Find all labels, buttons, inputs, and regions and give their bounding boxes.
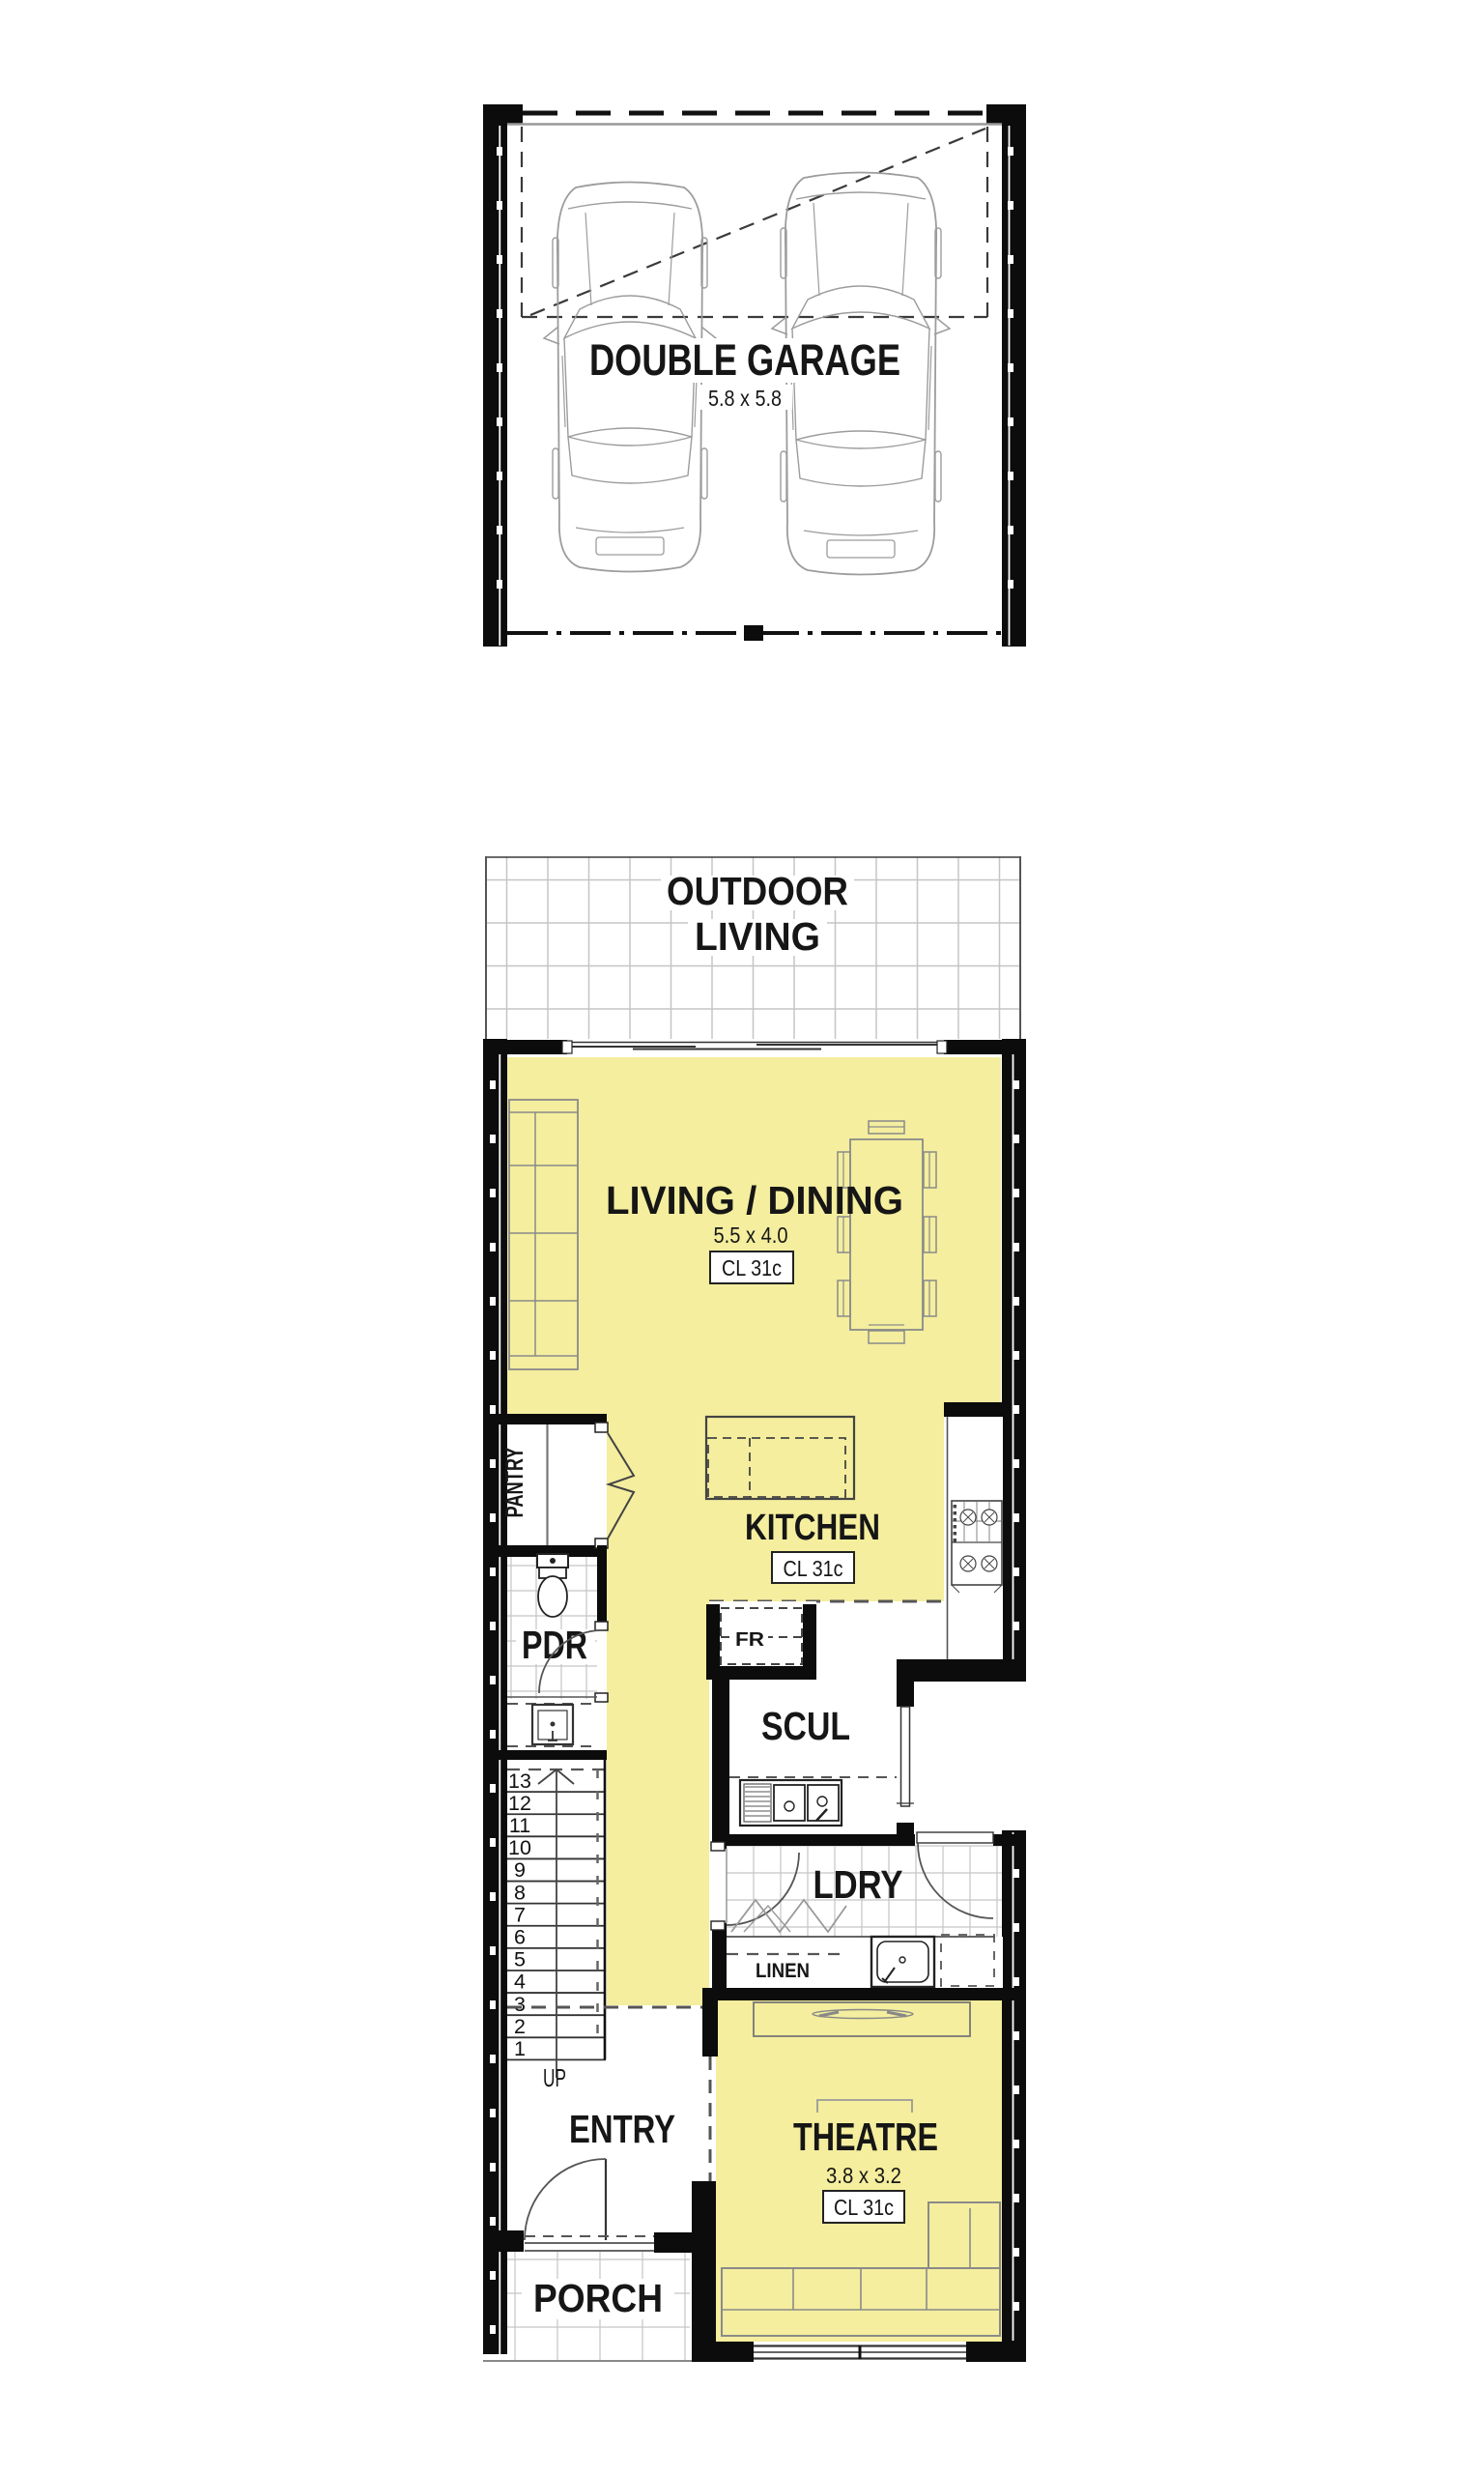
svg-text:5.8 x 5.8: 5.8 x 5.8 bbox=[708, 386, 782, 411]
svg-text:13: 13 bbox=[508, 1769, 531, 1793]
svg-text:FR: FR bbox=[735, 1629, 765, 1651]
svg-text:THEATRE: THEATRE bbox=[793, 2114, 938, 2159]
svg-text:LINEN: LINEN bbox=[756, 1960, 810, 1982]
svg-text:3: 3 bbox=[514, 1993, 526, 2016]
svg-text:LDRY: LDRY bbox=[813, 1862, 903, 1907]
svg-text:1: 1 bbox=[514, 2037, 526, 2060]
svg-text:4: 4 bbox=[514, 1971, 526, 1994]
svg-text:10: 10 bbox=[508, 1836, 531, 1859]
svg-text:5: 5 bbox=[514, 1948, 526, 1971]
svg-text:CL 31c: CL 31c bbox=[784, 1556, 843, 1581]
svg-text:8: 8 bbox=[514, 1881, 526, 1904]
svg-text:LIVING: LIVING bbox=[695, 914, 820, 959]
svg-text:SCUL: SCUL bbox=[761, 1704, 850, 1748]
svg-text:PORCH: PORCH bbox=[533, 2276, 663, 2320]
svg-text:KITCHEN: KITCHEN bbox=[745, 1508, 880, 1548]
svg-text:11: 11 bbox=[509, 1814, 530, 1837]
svg-text:CL 31c: CL 31c bbox=[834, 2195, 894, 2220]
svg-text:CL 31c: CL 31c bbox=[722, 1255, 782, 1280]
svg-text:PANTRY: PANTRY bbox=[499, 1448, 528, 1518]
svg-text:5.5 x 4.0: 5.5 x 4.0 bbox=[714, 1223, 788, 1248]
svg-text:12: 12 bbox=[508, 1792, 531, 1815]
svg-text:3.8 x 3.2: 3.8 x 3.2 bbox=[826, 2163, 901, 2188]
svg-text:6: 6 bbox=[514, 1926, 526, 1949]
svg-text:LIVING / DINING: LIVING / DINING bbox=[606, 1178, 903, 1223]
svg-text:2: 2 bbox=[514, 2015, 526, 2038]
svg-text:OUTDOOR: OUTDOOR bbox=[667, 869, 848, 913]
svg-text:7: 7 bbox=[514, 1903, 526, 1926]
svg-text:UP: UP bbox=[543, 2063, 566, 2092]
svg-text:ENTRY: ENTRY bbox=[569, 2107, 675, 2151]
svg-text:DOUBLE GARAGE: DOUBLE GARAGE bbox=[589, 335, 900, 385]
svg-text:PDR: PDR bbox=[522, 1623, 587, 1667]
svg-text:9: 9 bbox=[514, 1858, 526, 1882]
